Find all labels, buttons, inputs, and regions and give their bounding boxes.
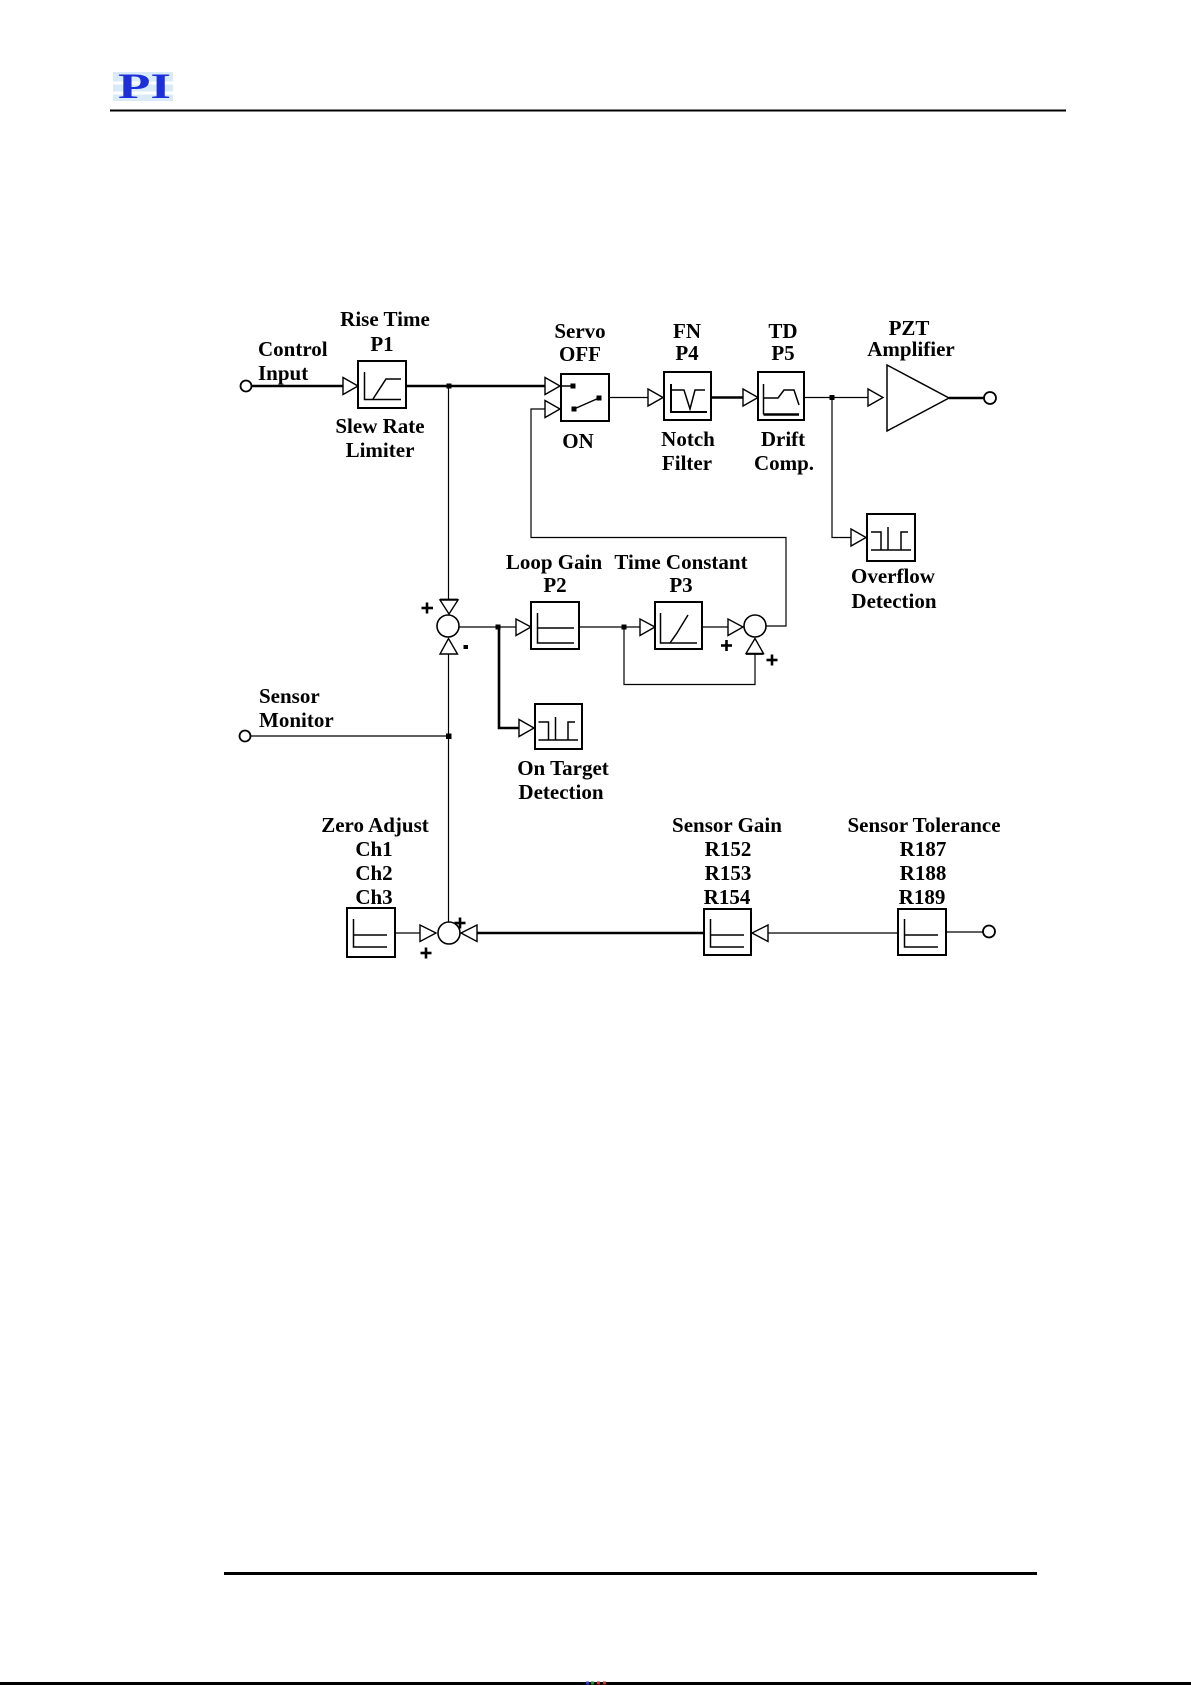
svg-text:R152: R152 (705, 837, 752, 861)
svg-text:Limiter: Limiter (346, 438, 415, 462)
svg-text:Rise Time: Rise Time (340, 307, 430, 331)
svg-text:Ch1: Ch1 (355, 837, 392, 861)
svg-text:TD: TD (768, 319, 797, 343)
svg-text:Zero Adjust: Zero Adjust (321, 813, 429, 837)
svg-text:P4: P4 (675, 341, 699, 365)
svg-text:P5: P5 (771, 341, 794, 365)
svg-text:P3: P3 (669, 573, 692, 597)
svg-text:Servo: Servo (554, 319, 605, 343)
svg-text:Filter: Filter (662, 451, 712, 475)
svg-text:Input: Input (258, 361, 308, 385)
svg-text:R153: R153 (705, 861, 752, 885)
svg-text:On Target: On Target (517, 756, 609, 780)
svg-text:R154: R154 (704, 885, 751, 909)
svg-text:P1: P1 (370, 332, 393, 356)
svg-text:Ch3: Ch3 (355, 885, 392, 909)
svg-text:Detection: Detection (518, 780, 603, 804)
svg-text:Ch2: Ch2 (355, 861, 392, 885)
svg-text:P2: P2 (543, 573, 566, 597)
svg-text:Monitor: Monitor (259, 708, 334, 732)
svg-text:Slew Rate: Slew Rate (335, 414, 424, 438)
svg-text:R189: R189 (899, 885, 946, 909)
svg-text:ON: ON (562, 429, 594, 453)
svg-text:R188: R188 (900, 861, 947, 885)
svg-text:Sensor Tolerance: Sensor Tolerance (847, 813, 1000, 837)
svg-text:Control: Control (258, 337, 328, 361)
svg-text:Sensor Gain: Sensor Gain (672, 813, 782, 837)
svg-text:Comp.: Comp. (754, 451, 814, 475)
svg-text:OFF: OFF (559, 342, 601, 366)
svg-text:Time Constant: Time Constant (614, 550, 747, 574)
svg-text:PI: PI (118, 66, 171, 106)
svg-text:Drift: Drift (761, 427, 805, 451)
svg-text:Loop Gain: Loop Gain (506, 550, 603, 574)
svg-text:R187: R187 (900, 837, 947, 861)
svg-text:Sensor: Sensor (259, 684, 320, 708)
svg-text:Detection: Detection (851, 589, 936, 613)
svg-text:Overflow: Overflow (851, 564, 936, 588)
svg-text:Notch: Notch (661, 427, 715, 451)
svg-text:Amplifier: Amplifier (867, 337, 954, 361)
svg-text:FN: FN (673, 319, 701, 343)
